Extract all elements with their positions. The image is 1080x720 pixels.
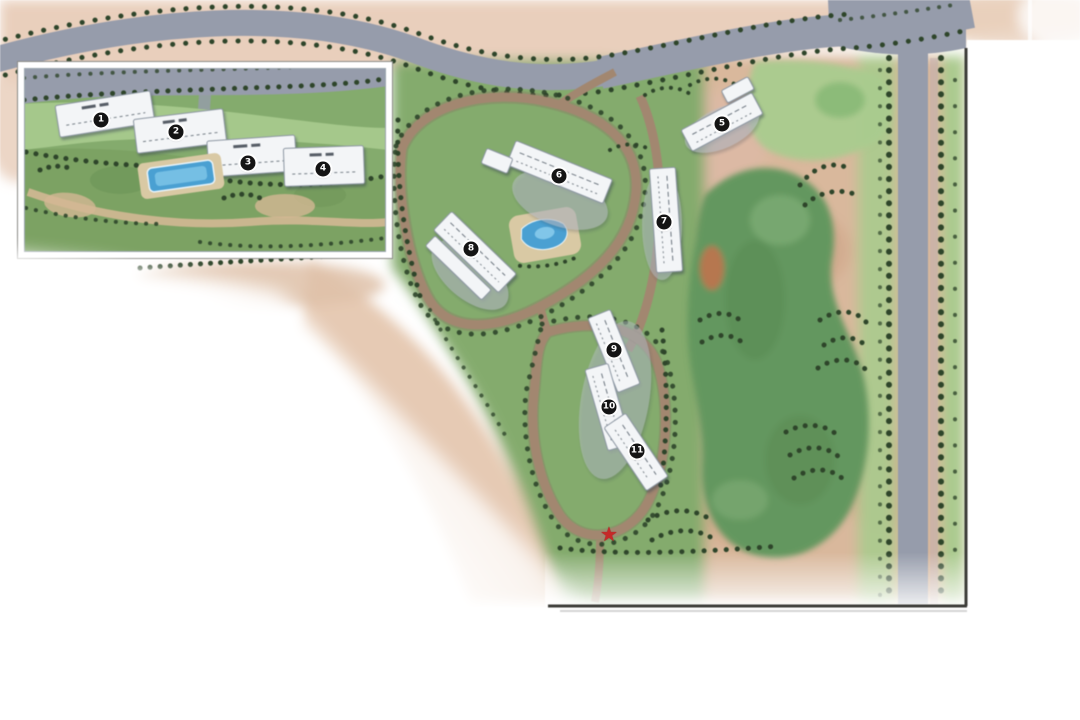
inset-building-4 xyxy=(283,146,364,187)
site-plan-screenshot: 1234 567891011 ★ xyxy=(0,0,1080,720)
site-plan-map xyxy=(0,0,1080,720)
inset-map xyxy=(18,62,393,259)
